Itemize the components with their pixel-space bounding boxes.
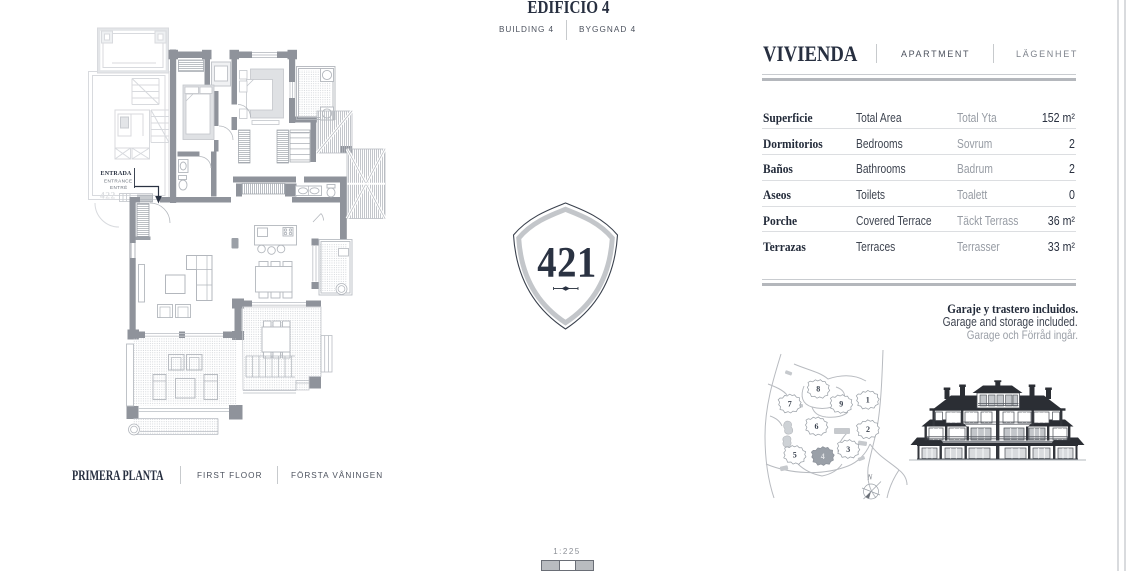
svg-text:N: N (867, 474, 873, 482)
svg-text:8: 8 (816, 385, 820, 394)
svg-text:4: 4 (821, 452, 825, 461)
svg-text:ENTRADA: ENTRADA (101, 171, 133, 177)
svg-text:ENTRANCE: ENTRANCE (104, 179, 132, 184)
svg-text:7: 7 (788, 399, 792, 408)
svg-text:ENTRÉ: ENTRÉ (110, 184, 128, 190)
svg-text:2: 2 (866, 425, 870, 434)
svg-text:1: 1 (866, 396, 870, 405)
svg-text:9: 9 (839, 400, 843, 409)
svg-text:422: 422 (100, 192, 116, 202)
svg-text:421: 421 (537, 237, 596, 286)
svg-text:6: 6 (815, 422, 819, 431)
svg-text:3: 3 (846, 445, 850, 454)
svg-text:5: 5 (793, 451, 797, 460)
